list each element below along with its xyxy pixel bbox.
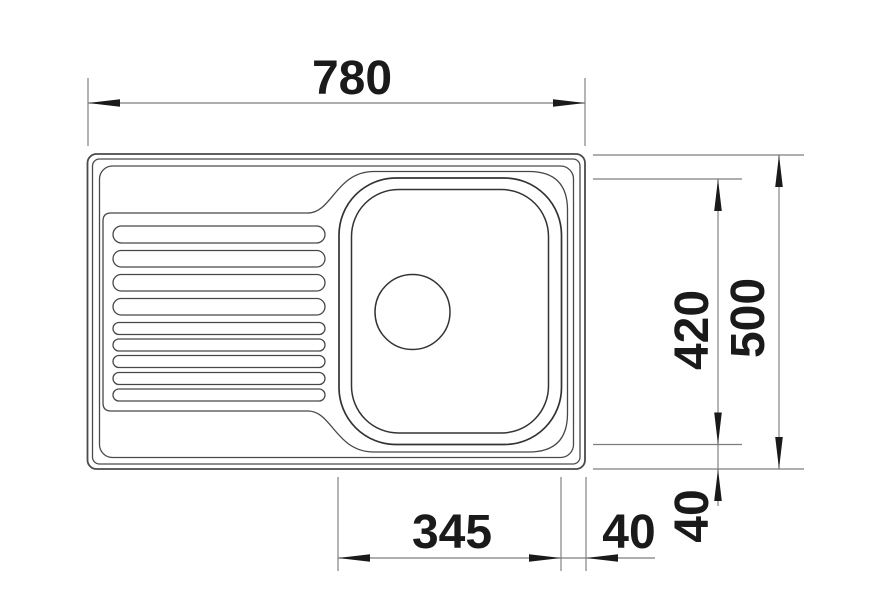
arrow-right-345: [529, 554, 561, 562]
technical-drawing-canvas: 780 345 40 420 500 40: [0, 0, 874, 608]
label-offset-right: 40: [602, 506, 655, 559]
dimension-labels: 780 345 40 420 500 40: [312, 52, 775, 559]
drainboard-groove: [113, 339, 325, 351]
arrow-bottom-420: [714, 413, 722, 445]
label-cutout-width: 345: [412, 506, 492, 559]
drainboard-groove: [113, 226, 325, 243]
drainboard-groove: [113, 251, 325, 268]
drainboard-groove: [113, 323, 325, 335]
sink-recess: [103, 172, 568, 453]
arrow-bottom-500: [775, 437, 783, 469]
arrow-top-420: [714, 179, 722, 211]
arrow-left-780: [88, 99, 120, 107]
sink-outer-edge: [88, 154, 586, 469]
drainboard-groove: [113, 356, 325, 368]
label-overall-width: 780: [312, 52, 392, 105]
drainboard-groove: [113, 275, 325, 292]
sink-rim-inner-line: [100, 166, 574, 458]
recess-outline: [103, 172, 568, 453]
drainboard-groove: [113, 389, 325, 401]
drain-hole: [375, 275, 450, 350]
drainboard-groove: [113, 299, 325, 316]
label-overall-depth: 500: [722, 278, 775, 358]
sink-dimension-drawing: 780 345 40 420 500 40: [0, 0, 874, 608]
label-cutout-depth: 420: [666, 290, 719, 370]
arrow-top-500: [775, 155, 783, 187]
drainboard-grooves: [113, 226, 325, 401]
sink-bowl: [339, 178, 562, 445]
sink-rim-middle-line: [93, 159, 581, 464]
sink-outline: [88, 154, 586, 469]
label-offset-bottom: 40: [666, 489, 719, 542]
drainboard-groove: [113, 373, 325, 385]
arrow-right-780: [553, 99, 585, 107]
arrow-left-345: [338, 554, 370, 562]
